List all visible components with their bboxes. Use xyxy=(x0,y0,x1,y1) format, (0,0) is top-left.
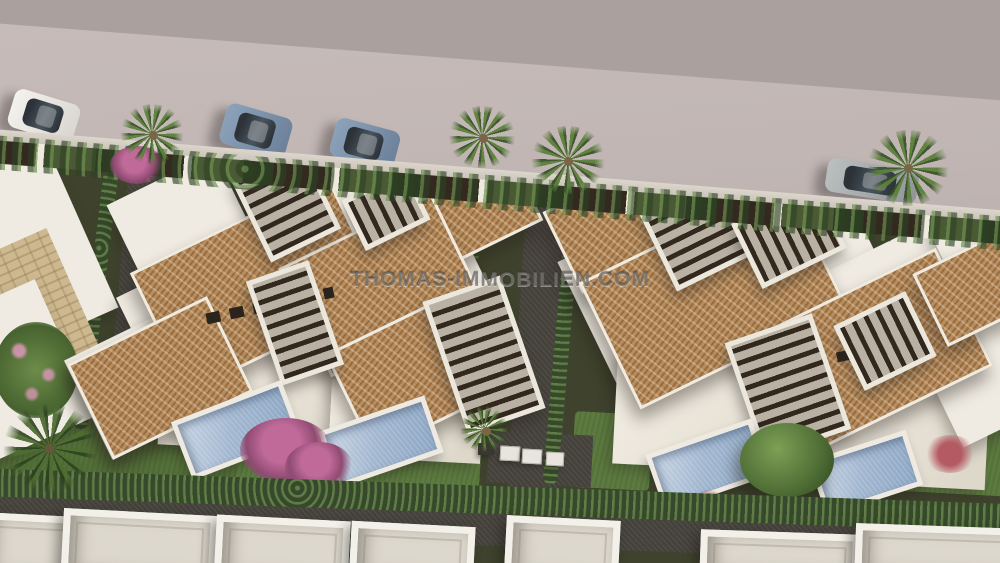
palm-tree xyxy=(530,126,606,194)
flower-bush xyxy=(923,435,977,473)
ac-unit xyxy=(500,445,521,461)
foreground-roof xyxy=(60,508,218,563)
palm-tree xyxy=(120,104,184,164)
foreground-roof xyxy=(503,515,621,563)
watermark-text: THOMAS-IMMOBILIEN.COM xyxy=(0,268,1000,292)
ac-unit xyxy=(522,448,543,464)
palm-tree xyxy=(448,106,516,168)
palm-tree xyxy=(460,406,508,452)
garden-tree xyxy=(740,423,834,497)
foreground-roof xyxy=(213,515,351,563)
render-canvas: THOMAS-IMMOBILIEN.COM xyxy=(0,0,1000,563)
foreground-roof xyxy=(854,523,1000,563)
ac-unit xyxy=(546,452,565,467)
foreground-roof xyxy=(699,529,860,563)
palm-tree xyxy=(866,130,950,206)
foreground-roof xyxy=(348,521,475,563)
palm-tree xyxy=(2,404,98,492)
